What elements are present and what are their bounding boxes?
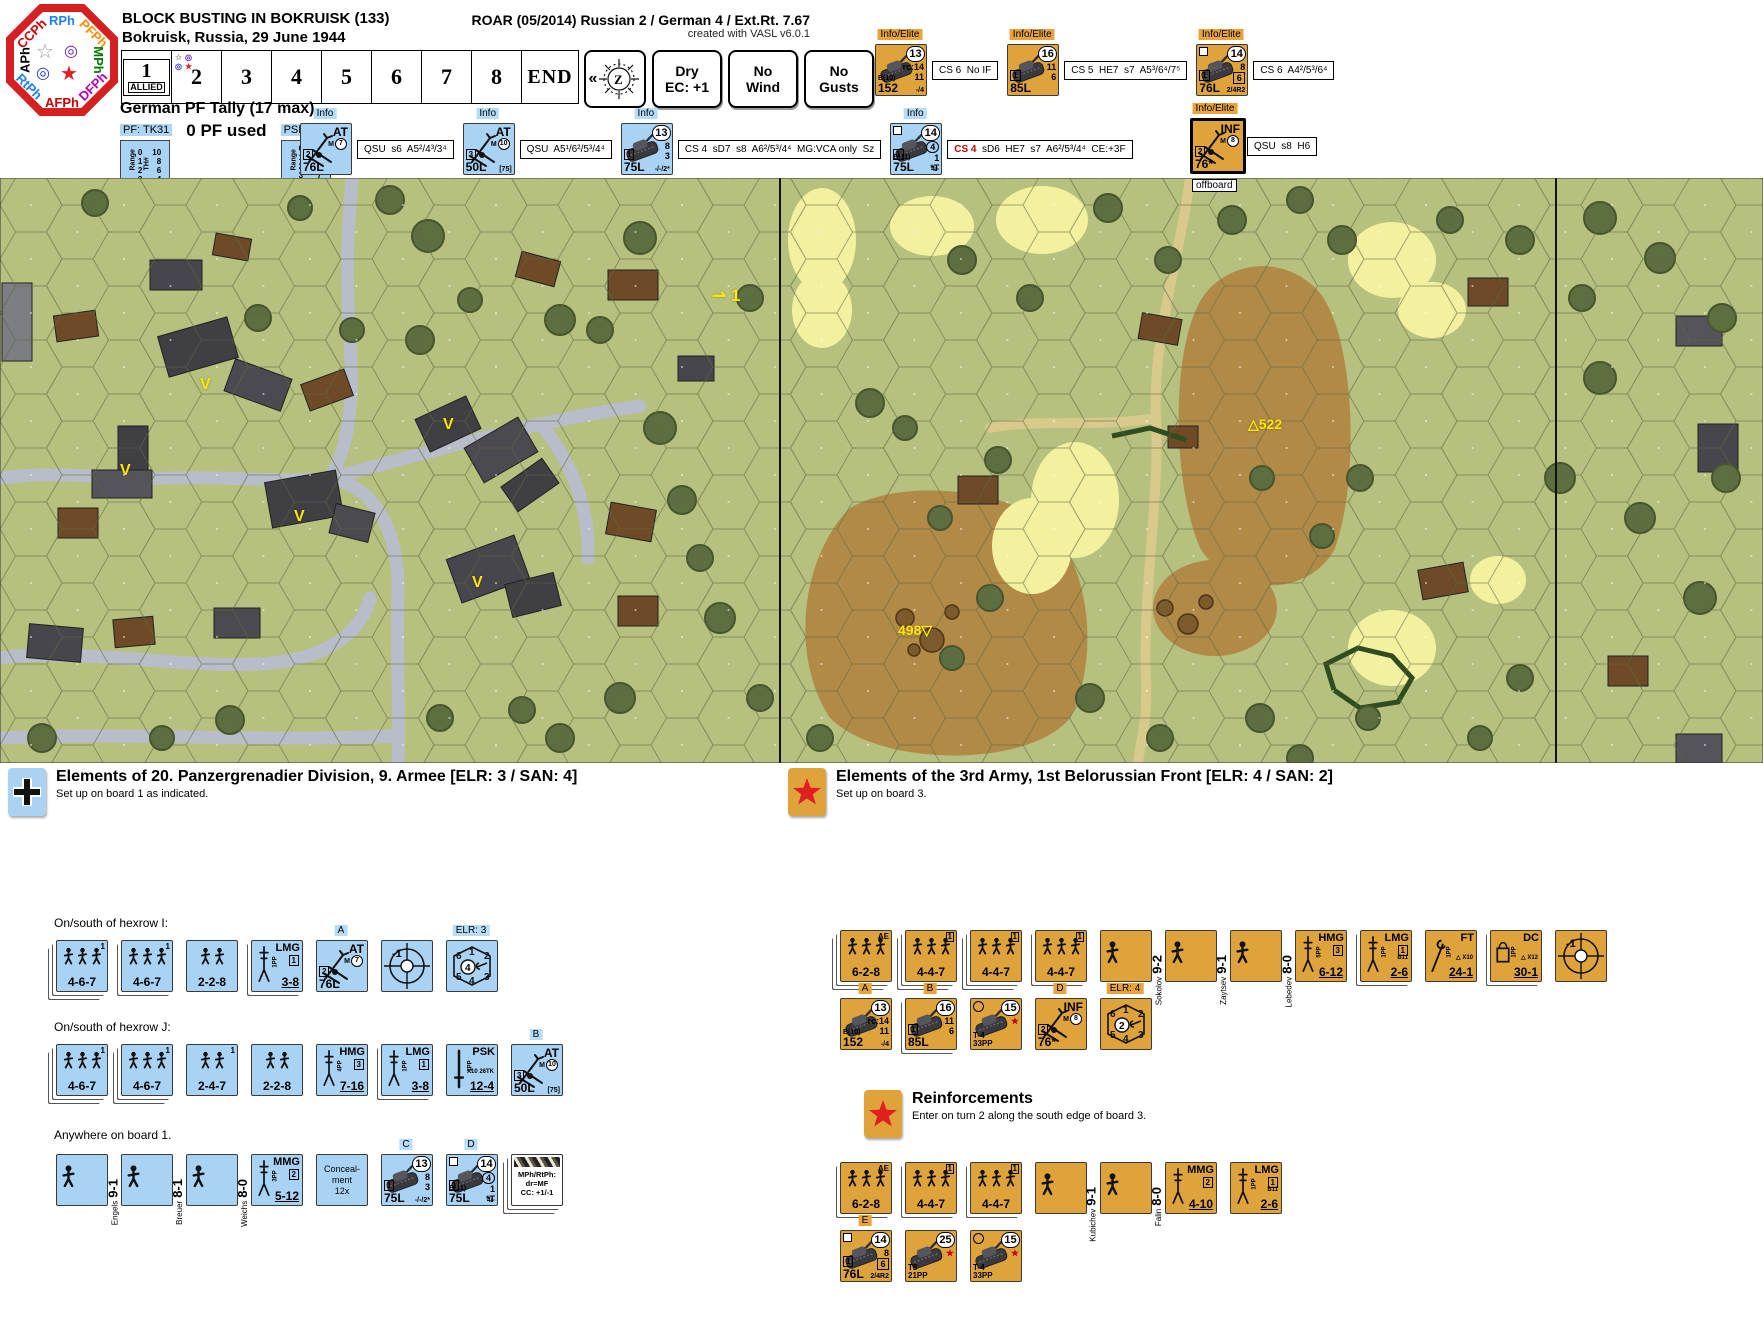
russian-star-icon — [864, 1090, 902, 1138]
counter-label[interactable]: B — [924, 983, 937, 994]
soldier-icon — [860, 935, 873, 957]
svg-text:4: 4 — [465, 963, 471, 974]
counter-note[interactable]: CS 4 sD7 s8 A6²/5³/4⁴ MG:VCA only Sz — [678, 140, 881, 159]
counter-sw-HMG[interactable]: HMG4PP37-16 — [316, 1044, 368, 1096]
svg-text:3: 3 — [1138, 1030, 1144, 1041]
soldier-icon — [1234, 935, 1251, 969]
russian-afv-row: Info/Elite13rc:1411B(10)152-/4CS 6 No IF… — [875, 44, 1334, 96]
machinegun-icon — [1169, 1167, 1187, 1207]
acquisition-icon: -1 — [382, 941, 432, 991]
counter-label[interactable]: B — [530, 1029, 543, 1040]
counter-afv-75L[interactable]: 1441*T1B(11)75L4/- — [890, 123, 942, 175]
flamethrower-icon — [1429, 935, 1447, 975]
machinegun-icon — [1234, 1167, 1252, 1207]
phase-afph: AFPh — [45, 95, 79, 110]
counter-sniper-x[interactable]: 6125434 — [446, 940, 498, 992]
counter-label[interactable]: Info/Elite — [1010, 29, 1055, 40]
demo-charge-icon — [1494, 935, 1512, 975]
turn-cell-5[interactable]: 5 — [321, 50, 372, 104]
turn-cell-end[interactable]: END — [521, 50, 579, 104]
russian-row1: AE6-2-814-4-714-4-714-4-7Sokolov9-2Zayts… — [840, 930, 1605, 982]
counter-label[interactable]: Info — [635, 108, 658, 119]
soldier-icon — [990, 935, 1003, 957]
svg-text:2: 2 — [484, 951, 490, 962]
soldier-icon — [62, 1049, 75, 1071]
pf-tally-title: German PF Tally (17 max) — [120, 100, 341, 118]
soldier-icon — [911, 1167, 924, 1189]
victory-marker[interactable]: V — [120, 462, 131, 480]
soldier-icon — [1069, 935, 1082, 957]
soldier-icon — [62, 945, 75, 967]
svg-text:6: 6 — [456, 951, 462, 962]
labeled-counter-pair: Info/Elite16116185LCS 5 HE7 s7 A5³/6⁴/7⁵ — [1007, 44, 1187, 96]
roar-info: ROAR (05/2014) Russian 2 / German 4 / Ex… — [440, 12, 810, 40]
counter-label[interactable]: A — [859, 983, 872, 994]
counter-leader-Breuer[interactable]: Breuer8-1 — [121, 1154, 173, 1206]
counter-note[interactable]: CS 4 sD6 HE7 s7 A6²/5³/4⁴ CE:+3F — [947, 140, 1132, 159]
counter-acq--1[interactable]: -1 — [381, 940, 433, 992]
turn2-entry-icons: ☆◎◎★ — [175, 53, 195, 71]
svg-text:1: 1 — [469, 947, 475, 958]
counter-leader-Sokolov[interactable]: Sokolov9-2 — [1100, 930, 1152, 982]
counter-afv-T-4[interactable]: 15★T-433PP — [970, 998, 1022, 1050]
reinforcements-title: Reinforcements — [912, 1090, 1146, 1108]
russian-offboard-gun-row: Info/EliteINFM8276*QSU s8 H6 — [1190, 118, 1317, 174]
counter-squad-2-4-7[interactable]: 12-4-7 — [186, 1044, 238, 1096]
svg-text:1: 1 — [1123, 1005, 1129, 1016]
counter-note[interactable]: QSU s6 A5²/4³/3⁴ — [357, 140, 454, 159]
soldier-icon — [976, 935, 989, 957]
counter-afv-75L[interactable]: 1383175L-/-/2* — [621, 123, 673, 175]
counter-label[interactable]: D — [464, 1139, 477, 1150]
soldier-icon — [213, 1049, 226, 1071]
soldier-icon — [976, 1167, 989, 1189]
vasl-version: created with VASL v6.0.1 — [440, 28, 810, 40]
map-art — [0, 178, 1763, 763]
counter-leader-Engels[interactable]: Engels9-1 — [56, 1154, 108, 1206]
counter-gun-AT[interactable]: ATM10350L[75] — [463, 123, 515, 175]
counter-squad-2-2-8[interactable]: 2-2-8 — [186, 940, 238, 992]
labeled-counter-pair: InfoATM10350L[75]QSU A5¹/6²/5³/4⁴ — [463, 123, 612, 175]
german-group2-row: 14-6-714-6-712-4-72-2-8HMG4PP37-16LMG1PP… — [56, 1044, 561, 1096]
board-arrow-marker[interactable]: ⇀ 1 — [712, 286, 740, 306]
reinforcements-subtitle: Enter on turn 2 along the south edge of … — [912, 1110, 1146, 1122]
soldier-icon — [925, 1167, 938, 1189]
german-setup-panel: Elements of 20. Panzergrenadier Division… — [8, 768, 778, 1328]
scenario-location: Bokruisk, Russia, 29 June 1944 — [122, 29, 390, 48]
svg-text:-1: -1 — [392, 948, 402, 960]
soldier-icon — [1039, 1167, 1056, 1201]
soldier-icon — [127, 1049, 140, 1071]
reinforcements-header: Reinforcements Enter on turn 2 along the… — [864, 1090, 1146, 1138]
svg-text:5: 5 — [1110, 1030, 1116, 1041]
red-star-icon — [868, 1099, 898, 1129]
counter-note[interactable]: CS 6 No IF — [932, 61, 998, 80]
roar-record: ROAR (05/2014) Russian 2 / German 4 / Ex… — [440, 12, 810, 28]
star-outline-icon: ☆ — [36, 42, 54, 62]
victory-marker[interactable]: V — [200, 376, 211, 394]
soldier-icon — [1041, 935, 1054, 957]
soldier-icon — [846, 935, 859, 957]
russian-row2: A13rc:1411B(10)152-/4B16116185L15★T-433P… — [840, 998, 1150, 1050]
victory-marker[interactable]: V — [472, 574, 483, 592]
counter-afv-T8[interactable]: 25★T821PP — [905, 1230, 957, 1282]
machinegun-icon — [255, 1159, 273, 1199]
soldier-icon — [1055, 935, 1068, 957]
counter-label[interactable]: Info/Elite — [878, 29, 923, 40]
soldier-icon — [1104, 1167, 1121, 1201]
svg-text:3: 3 — [484, 972, 490, 983]
russian-panel-subtitle: Set up on board 3. — [836, 788, 1333, 800]
counter-afv-76L[interactable]: 1486176L2/4R2 — [840, 1230, 892, 1282]
turn-cell-7[interactable]: 7 — [421, 50, 472, 104]
counter-gun-INF[interactable]: INFM8276* — [1190, 118, 1246, 174]
counter-sw-MMG[interactable]: MMG3PP25-12 — [251, 1154, 303, 1206]
soldier-icon — [155, 945, 168, 967]
counter-label[interactable]: Info — [314, 108, 337, 119]
german-cross-icon — [8, 768, 46, 816]
phase-wheel[interactable]: RPhPFPhMPhDFPhAFPhRtPhAPhCCPh ☆ ◎ ◎ ★ — [6, 4, 118, 116]
counter-gun-AT[interactable]: ATM10350L[75] — [511, 1044, 563, 1096]
counter-sw-PSK[interactable]: PSK1PPX10 26TK12-4 — [446, 1044, 498, 1096]
labeled-counter-pair: Info/Elite1486176L2/4R2CS 6 A4²/5³/6⁴ — [1196, 44, 1334, 96]
soldier-icon — [76, 1049, 89, 1071]
counter-note-x[interactable]: MPh/RtPh:dr=MFCC: +1/-1 — [511, 1154, 563, 1206]
soldier-icon — [199, 1049, 212, 1071]
soldier-icon — [1169, 935, 1186, 969]
counter-squad-4-4-7[interactable]: 14-4-7 — [1035, 930, 1087, 982]
svg-text:2: 2 — [1138, 1009, 1144, 1020]
turn-cell-4[interactable]: 4 — [271, 50, 322, 104]
machinegun-icon — [385, 1049, 403, 1089]
offboard-label[interactable]: offboard — [1192, 179, 1237, 192]
soldier-icon — [278, 1049, 291, 1071]
counter-afv-152[interactable]: 13rc:1411B(10)152-/4 — [840, 998, 892, 1050]
soldier-icon — [874, 935, 887, 957]
counter-afv-T-4[interactable]: 15★T-433PP — [970, 1230, 1022, 1282]
soldier-icon — [141, 945, 154, 967]
soldier-icon — [925, 935, 938, 957]
counter-label[interactable]: Info/Elite — [1199, 29, 1244, 40]
machinegun-icon — [1299, 935, 1317, 975]
svg-text:5: 5 — [456, 972, 462, 983]
labeled-counter-pair: Info/EliteINFM8276*QSU s8 H6 — [1190, 118, 1317, 174]
panzerschreck-icon — [450, 1049, 468, 1089]
counter-leader-Zaytsev[interactable]: Zaytsev9-1 — [1165, 930, 1217, 982]
turn-cell-3[interactable]: 3 — [221, 50, 272, 104]
phase-rph: RPh — [49, 13, 75, 28]
counter-afv-152[interactable]: 13rc:1411B(10)152-/4 — [875, 44, 927, 96]
svg-text:6: 6 — [1110, 1009, 1116, 1020]
weather-button-2[interactable]: NoGusts — [804, 50, 874, 108]
german-panel-subtitle: Set up on board 1 as indicated. — [56, 788, 577, 800]
counter-afv-75L[interactable]: 1441*T1B(11)75L4/- — [446, 1154, 498, 1206]
sniper-icon: 6125432 — [1101, 999, 1151, 1049]
counter-squad-4-4-7[interactable]: 14-4-7 — [905, 930, 957, 982]
german-group1-row: 14-6-714-6-72-2-8LMG1PP13-8AATM7276L-1EL… — [56, 940, 496, 992]
soldier-icon — [190, 1159, 207, 1193]
phase-aph: APh — [18, 47, 33, 73]
soldier-icon — [939, 935, 952, 957]
counter-sw-LMG[interactable]: LMG1PP13-8 — [251, 940, 303, 992]
victory-marker[interactable]: V — [443, 416, 454, 434]
german-group1-header: On/south of hexrow I: — [54, 916, 168, 930]
hill-label: △522 — [1248, 416, 1282, 433]
german-group3-header: Anywhere on board 1. — [54, 1128, 171, 1142]
counter-gun-AT[interactable]: ATM7276L — [300, 123, 352, 175]
counter-leader-Weichs[interactable]: Weichs8-0 — [186, 1154, 238, 1206]
counter-gun-AT[interactable]: ATM7276L — [316, 940, 368, 992]
counter-sniper-x[interactable]: 6125432 — [1100, 998, 1152, 1050]
counter-label[interactable]: ELR: 4 — [1107, 983, 1144, 994]
counter-note[interactable]: QSU A5¹/6²/5³/4⁴ — [520, 140, 612, 159]
compass-button[interactable]: «Z — [584, 50, 646, 108]
counter-sw-LMG[interactable]: LMG1PP1B112-6 — [1360, 930, 1412, 982]
svg-text:-1: -1 — [1566, 938, 1576, 950]
counter-acq--1[interactable]: -1 — [1555, 930, 1607, 982]
counter-label[interactable]: ELR: 3 — [453, 925, 490, 936]
russian-star-icon — [788, 768, 826, 816]
soldier-icon — [1004, 1167, 1017, 1189]
scenario-header: RPhPFPhMPhDFPhAFPhRtPhAPhCCPh ☆ ◎ ◎ ★ BL… — [0, 0, 1763, 178]
pf-chip[interactable]: PF: TK31 — [120, 124, 172, 136]
counter-squad-4-6-7[interactable]: 14-6-7 — [121, 1044, 173, 1096]
soldier-icon — [911, 935, 924, 957]
counter-squad-4-6-7[interactable]: 14-6-7 — [121, 940, 173, 992]
acquisition-icon: -1 — [1556, 931, 1606, 981]
scenario-title-block: BLOCK BUSTING IN BOKRUISK (133) Bokruisk… — [122, 10, 390, 48]
soldier-icon — [90, 1049, 103, 1071]
counter-sw-LMG[interactable]: LMG1PP1B112-6 — [1230, 1162, 1282, 1214]
turn-cell-6[interactable]: 6 — [371, 50, 422, 104]
counter-label[interactable]: E — [859, 1215, 872, 1226]
counter-afv-76L[interactable]: 1486176L2/4R2 — [1196, 44, 1248, 96]
soldier-icon — [1004, 935, 1017, 957]
soldier-icon — [141, 1049, 154, 1071]
counter-sw-DC[interactable]: DC1PP△ X1230-1 — [1490, 930, 1542, 982]
counter-sw-LMG[interactable]: LMG1PP13-8 — [381, 1044, 433, 1096]
reinforcements-row2: E1486176L2/4R225★T821PP15★T-433PP — [840, 1230, 1020, 1282]
soldier-icon — [1104, 935, 1121, 969]
counter-text-x[interactable]: Conceal-ment12x — [316, 1154, 368, 1206]
counter-squad-6-2-8[interactable]: AE6-2-8 — [840, 1162, 892, 1214]
hill-label: 498▽ — [898, 622, 932, 639]
svg-text:4: 4 — [469, 976, 475, 987]
labeled-counter-pair: Info/Elite13rc:1411B(10)152-/4CS 6 No IF — [875, 44, 998, 96]
soldier-icon — [860, 1167, 873, 1189]
counter-afv-75L[interactable]: 1383175L-/-/2* — [381, 1154, 433, 1206]
blue-bullseye-icon: ◎ — [36, 66, 50, 82]
counter-label[interactable]: A — [335, 925, 348, 936]
german-panel-title: Elements of 20. Panzergrenadier Division… — [56, 768, 577, 786]
machinegun-icon — [320, 1049, 338, 1089]
reinforcements-row1: AE6-2-814-4-714-4-7Kubichev9-1Falin8-0MM… — [840, 1162, 1280, 1214]
counter-squad-4-4-7[interactable]: 14-4-7 — [905, 1162, 957, 1214]
compass-icon: Z — [597, 57, 641, 101]
counter-afv-85L[interactable]: 16116185L — [1007, 44, 1059, 96]
soldier-icon — [939, 1167, 952, 1189]
turn-cell-1[interactable]: 1ALLIED — [121, 50, 172, 104]
counter-label[interactable]: Info/Elite — [1193, 103, 1238, 114]
soldier-icon — [155, 1049, 168, 1071]
weather-button-0[interactable]: DryEC: +1 — [652, 50, 722, 108]
soldier-icon — [990, 1167, 1003, 1189]
balkenkreuz-icon — [13, 778, 41, 806]
soldier-icon — [127, 945, 140, 967]
turn-cell-2[interactable]: ☆◎◎★2 — [171, 50, 222, 104]
weather-button-1[interactable]: NoWind — [728, 50, 798, 108]
russian-panel-title: Elements of the 3rd Army, 1st Belorussia… — [836, 768, 1333, 786]
counter-leader-Lebedev[interactable]: Lebedev8-0 — [1230, 930, 1282, 982]
sniper-icon: 6125434 — [447, 941, 497, 991]
russian-setup-panel: Elements of the 3rd Army, 1st Belorussia… — [788, 768, 1763, 1328]
labeled-counter-pair: InfoATM7276LQSU s6 A5²/4³/3⁴ — [300, 123, 454, 175]
soldier-icon — [60, 1159, 77, 1193]
german-group2-header: On/south of hexrow J: — [54, 1020, 171, 1034]
counter-squad-4-6-7[interactable]: 14-6-7 — [56, 940, 108, 992]
soldier-icon — [125, 1159, 142, 1193]
counter-label[interactable]: Info — [904, 108, 927, 119]
soldier-icon — [264, 1049, 277, 1071]
counter-label[interactable]: Info — [476, 108, 499, 119]
scenario-title: BLOCK BUSTING IN BOKRUISK (133) — [122, 10, 390, 29]
german-group3-row: Engels9-1Breuer8-1Weichs8-0MMG3PP25-12Co… — [56, 1154, 561, 1206]
soldier-icon — [874, 1167, 887, 1189]
counter-label[interactable]: C — [399, 1139, 412, 1150]
red-star-icon — [792, 777, 822, 807]
counter-sw-MMG[interactable]: MMG24-10 — [1165, 1162, 1217, 1214]
counter-note[interactable]: CS 5 HE7 s7 A5³/6⁴/7⁵ — [1064, 61, 1187, 80]
labeled-counter-pair: Info1383175L-/-/2*CS 4 sD7 s8 A6²/5³/4⁴ … — [621, 123, 881, 175]
counter-sw-HMG[interactable]: HMG5PP36-12 — [1295, 930, 1347, 982]
machinegun-icon — [255, 945, 273, 985]
counter-leader-Falin[interactable]: Falin8-0 — [1100, 1162, 1152, 1214]
hex-map[interactable]: offboard △522498▽VVVVV⇀ 1 — [0, 178, 1763, 763]
soldier-icon — [213, 945, 226, 967]
red-star-icon: ★ — [60, 64, 78, 84]
counter-note[interactable]: CS 6 A4²/5³/6⁴ — [1253, 61, 1334, 80]
svg-text:Z: Z — [614, 72, 623, 87]
german-ordnance-row: InfoATM7276LQSU s6 A5²/4³/3⁴InfoATM10350… — [300, 123, 1133, 175]
machinegun-icon — [1364, 935, 1382, 975]
counter-squad-4-4-7[interactable]: 14-4-7 — [970, 930, 1022, 982]
svg-text:4: 4 — [1123, 1034, 1129, 1045]
counter-squad-6-2-8[interactable]: AE6-2-8 — [840, 930, 892, 982]
counter-gun-INF[interactable]: INFM8276* — [1035, 998, 1087, 1050]
counter-squad-4-4-7[interactable]: 14-4-7 — [970, 1162, 1022, 1214]
counter-squad-2-2-8[interactable]: 2-2-8 — [251, 1044, 303, 1096]
counter-leader-Kubichev[interactable]: Kubichev9-1 — [1035, 1162, 1087, 1214]
counter-afv-85L[interactable]: 16116185L — [905, 998, 957, 1050]
counter-note[interactable]: QSU s8 H6 — [1247, 137, 1317, 156]
counter-sw-FT[interactable]: FT1PP△ X1024-1 — [1425, 930, 1477, 982]
vasl-window: RPhPFPhMPhDFPhAFPhRtPhAPhCCPh ☆ ◎ ◎ ★ BL… — [0, 0, 1763, 1337]
counter-squad-4-6-7[interactable]: 14-6-7 — [56, 1044, 108, 1096]
svg-text:2: 2 — [1119, 1021, 1125, 1032]
counter-label[interactable]: D — [1053, 983, 1066, 994]
turn-cell-8[interactable]: 8 — [471, 50, 522, 104]
soldier-icon — [76, 945, 89, 967]
pf-used: 0 PF used — [186, 121, 266, 141]
purple-bullseye-icon: ◎ — [64, 44, 78, 60]
victory-marker[interactable]: V — [294, 508, 305, 526]
soldier-icon — [90, 945, 103, 967]
soldier-icon — [199, 945, 212, 967]
chevron-left-icon: « — [589, 70, 598, 88]
labeled-counter-pair: Info1441*T1B(11)75L4/-CS 4 sD6 HE7 s7 A6… — [890, 123, 1132, 175]
soldier-icon — [846, 1167, 859, 1189]
